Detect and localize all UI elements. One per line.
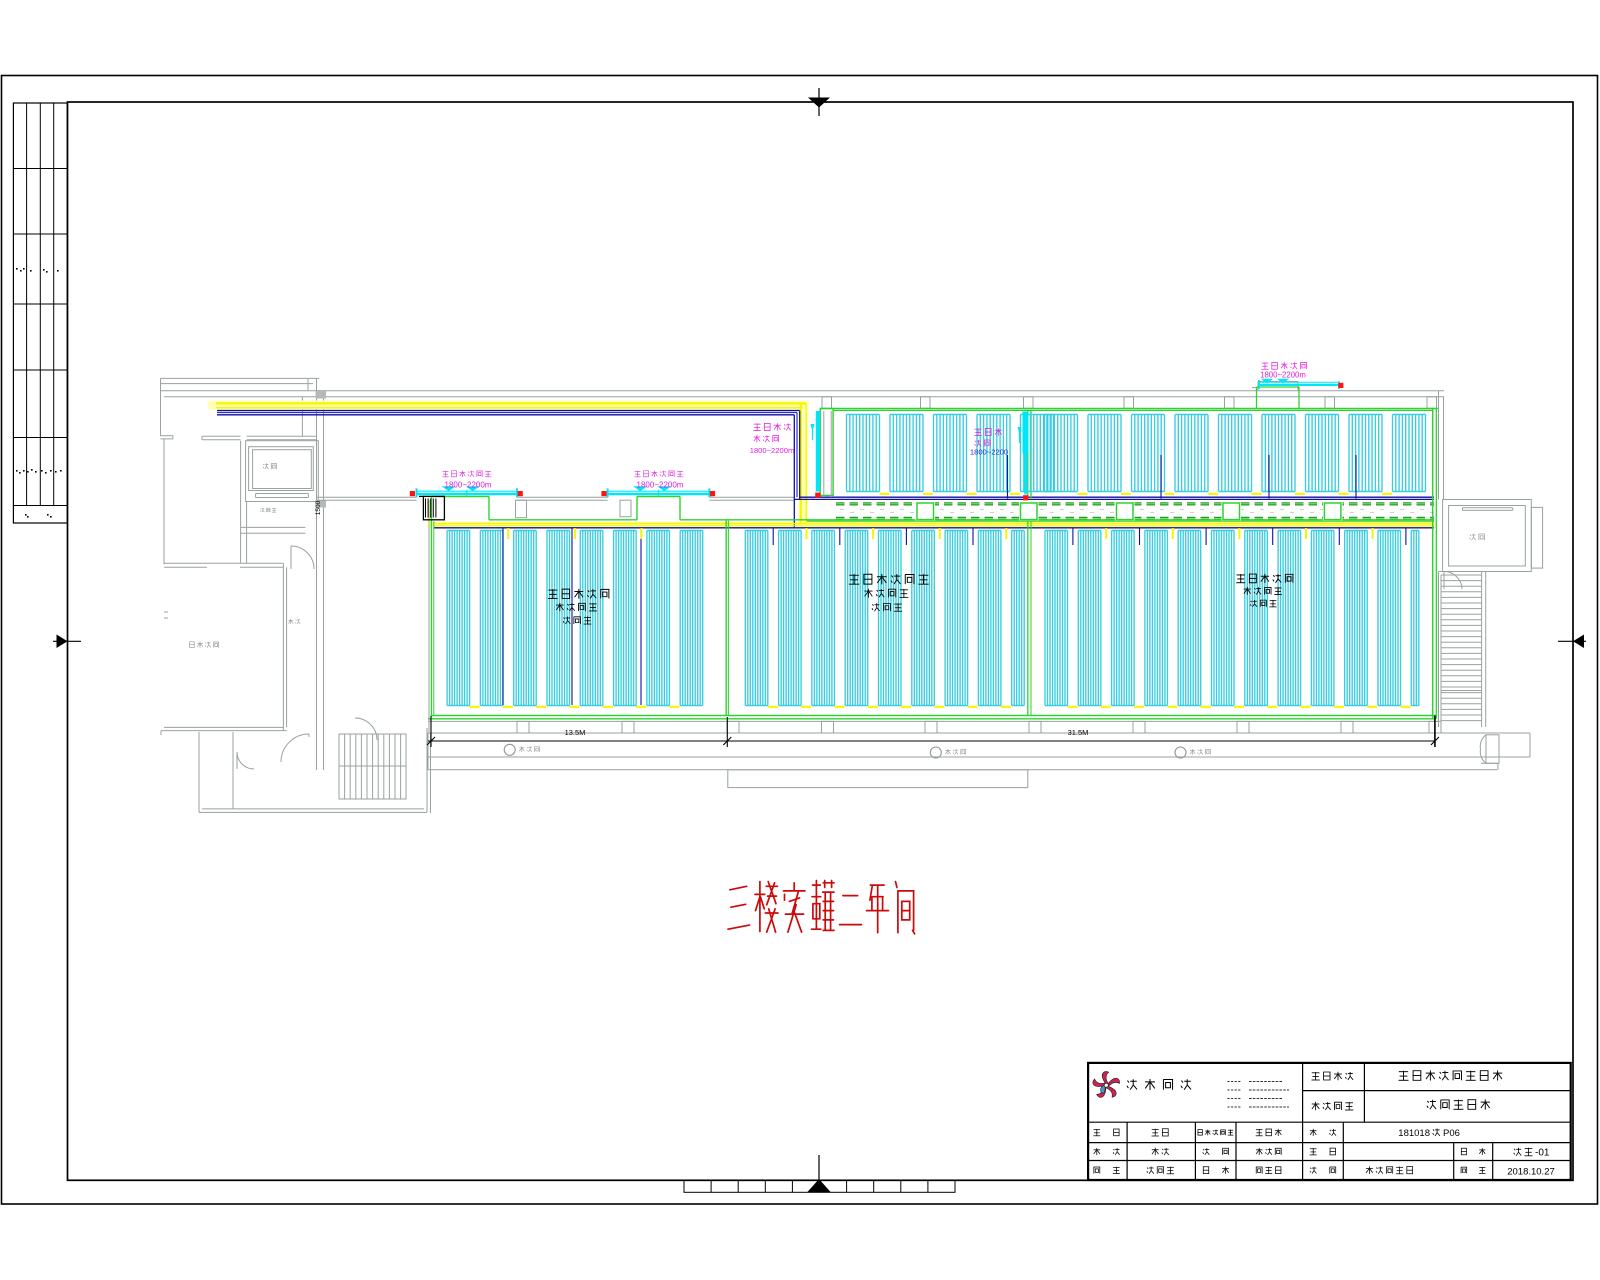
svg-text:181018: 181018 bbox=[1398, 1128, 1430, 1139]
svg-text:1800~2200m: 1800~2200m bbox=[1260, 371, 1306, 380]
svg-text:1800~2200m: 1800~2200m bbox=[750, 446, 795, 455]
svg-text:1800~2200m: 1800~2200m bbox=[445, 481, 492, 490]
svg-text:P06: P06 bbox=[1443, 1128, 1460, 1139]
svg-text:31.5M: 31.5M bbox=[1068, 728, 1089, 737]
svg-text:1800~2200: 1800~2200 bbox=[970, 448, 1008, 457]
svg-text:13.5M: 13.5M bbox=[565, 728, 586, 737]
svg-text:2018.10.27: 2018.10.27 bbox=[1507, 1167, 1555, 1178]
svg-text:-01: -01 bbox=[1535, 1148, 1550, 1159]
svg-text:1500: 1500 bbox=[315, 500, 322, 515]
svg-text:1800~2200m: 1800~2200m bbox=[637, 481, 684, 490]
